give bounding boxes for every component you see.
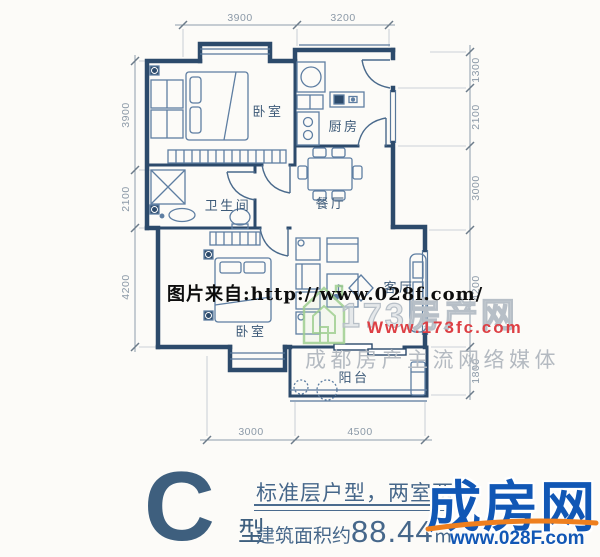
dim-bottom-2: 4500: [347, 426, 372, 438]
dimension-lines: [135, 25, 470, 440]
dim-top-2: 3200: [330, 12, 355, 24]
bedroom-bottom-door: [260, 228, 288, 256]
dining-furniture: [298, 148, 362, 200]
floorplan-drawing: 3900 3200 3900 2100 4200 1300 2100 3000 …: [0, 0, 600, 460]
chengfangwang-logo: 成房网 www.028F.com: [424, 462, 600, 557]
dim-left-2: 2100: [120, 186, 132, 211]
floorplan-image: 3900 3200 3900 2100 4200 1300 2100 3000 …: [0, 0, 600, 557]
caption-divider: [254, 504, 446, 511]
dim-left-3: 4200: [120, 274, 132, 299]
brand-url: www.028F.com: [450, 528, 584, 550]
room-label-bathroom: 卫生间: [205, 198, 252, 213]
unit-type-letter: C: [144, 466, 215, 546]
kitchen-door: [358, 118, 386, 146]
entry-door: [362, 60, 390, 88]
dim-bottom-1: 3000: [238, 426, 263, 438]
watermark-photo-source: 图片来自:http://www.028f.com/: [167, 280, 483, 306]
area-value: 88.44: [351, 514, 434, 550]
watermark-173-tagline: 成都房产主流网络媒体: [305, 344, 560, 374]
room-label-bedroom-bottom: 卧室: [235, 324, 266, 339]
watermark-173-url: Www.173fc.com: [367, 318, 523, 338]
dim-right-2: 2100: [470, 104, 482, 129]
bathroom-door: [227, 172, 255, 200]
dim-left-1: 3900: [120, 102, 132, 127]
room-label-kitchen: 厨房: [328, 119, 359, 134]
room-label-dining: 餐厅: [315, 196, 346, 211]
dim-top-1: 3900: [227, 12, 252, 24]
area-prefix: 建筑面积约: [256, 521, 351, 548]
bedroom-top-door: [262, 165, 290, 193]
dimension-extension-lines: [139, 29, 466, 436]
bedroom-top-furniture: [150, 66, 286, 214]
bedroom-bottom-furniture: [204, 232, 271, 322]
room-label-bedroom-top: 卧室: [252, 104, 283, 119]
dim-right-1: 1300: [470, 57, 482, 82]
dim-right-3: 3000: [470, 175, 482, 200]
